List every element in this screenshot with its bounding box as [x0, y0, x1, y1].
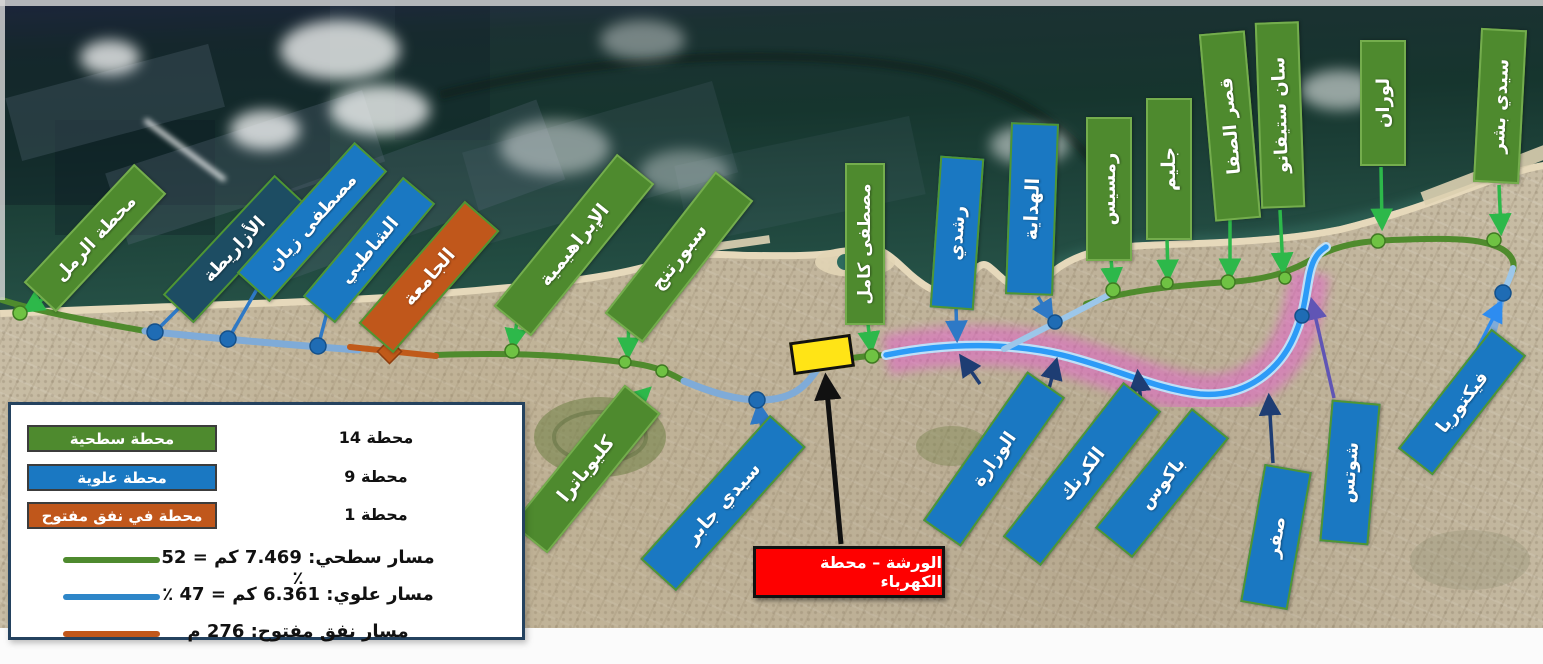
- legend-station-type-row: محطة في نفق مفتوح1 محطة: [11, 502, 522, 530]
- station-name: سان ستيفانو: [1267, 57, 1292, 174]
- legend-swatch: محطة علوية: [27, 464, 217, 491]
- station-label: جليم: [1146, 98, 1192, 240]
- map-edge-left: [0, 0, 5, 300]
- map-edge-top: [0, 0, 1543, 6]
- legend-route-line: [63, 557, 160, 563]
- station-name: رمسيس: [1099, 153, 1120, 226]
- legend-swatch: محطة سطحية: [27, 425, 217, 452]
- legend-route-line: [63, 631, 160, 637]
- legend-route-line: [63, 594, 160, 600]
- station-name: صفر: [1262, 515, 1290, 560]
- station-label: مصطفى كامل: [845, 163, 885, 325]
- legend-station-count: 9 محطة: [331, 467, 421, 486]
- legend-route-row: مسار نفق مفتوح: 276 م: [11, 619, 522, 649]
- workshop-callout-arrow: [826, 380, 841, 544]
- legend-route-text: مسار نفق مفتوح: 276 م: [159, 621, 437, 642]
- station-label: لوران: [1360, 40, 1406, 166]
- legend-station-count: 14 محطة: [331, 428, 421, 447]
- legend-station-type-row: محطة علوية9 محطة: [11, 464, 522, 492]
- legend-panel: محطة سطحية14 محطةمحطة علوية9 محطةمحطة في…: [8, 402, 525, 640]
- station-label: سيدي بشر: [1473, 28, 1527, 184]
- station-name: سيدي بشر: [1487, 58, 1513, 153]
- workshop-annotation-text: الورشة – محطة الكهرباء: [756, 553, 942, 591]
- station-label: الهداية: [1005, 122, 1059, 296]
- station-name: شوتس: [1337, 441, 1363, 504]
- station-name: لوران: [1373, 78, 1394, 128]
- legend-route-text: مسار علوي: 6.361 كم = 47 ٪: [159, 584, 437, 605]
- legend-station-count: 1 محطة: [331, 505, 421, 524]
- station-name: جليم: [1158, 147, 1180, 191]
- legend-station-type-row: محطة سطحية14 محطة: [11, 425, 522, 453]
- project-map: محطة الرملالأزاريطةمصطفى زيانالشاطبيالجا…: [0, 0, 1543, 664]
- station-name: قصر الصفا: [1215, 77, 1244, 176]
- workshop-annotation: الورشة – محطة الكهرباء: [753, 546, 945, 598]
- station-name: رشدي: [945, 205, 970, 261]
- station-name: مصطفى كامل: [855, 183, 875, 304]
- station-label: رمسيس: [1086, 117, 1132, 261]
- station-name: الهداية: [1020, 177, 1044, 240]
- legend-swatch: محطة في نفق مفتوح: [27, 502, 217, 529]
- legend-route-row: مسار سطحي: 7.469 كم = 52 ٪: [11, 545, 522, 575]
- legend-route-row: مسار علوي: 6.361 كم = 47 ٪: [11, 582, 522, 612]
- station-label: سان ستيفانو: [1255, 21, 1305, 208]
